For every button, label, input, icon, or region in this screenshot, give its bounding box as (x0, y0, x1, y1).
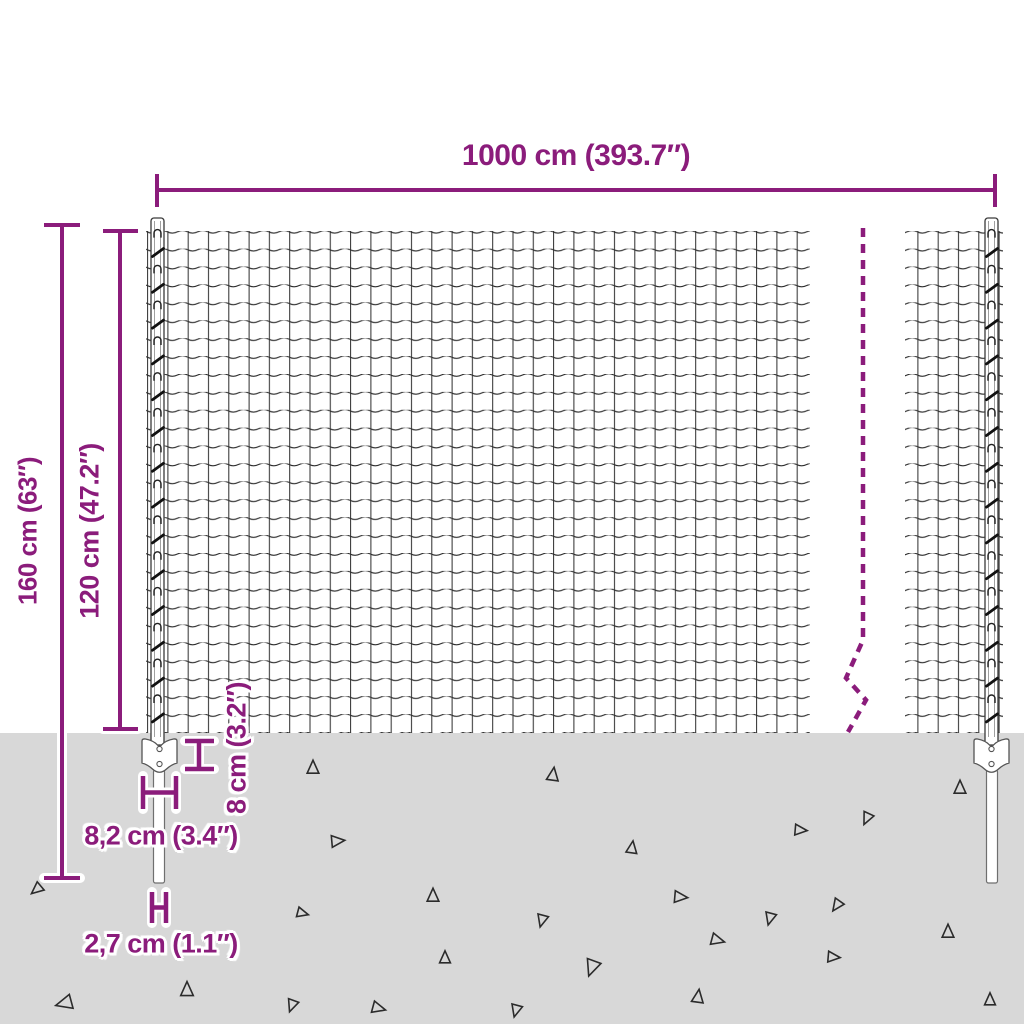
product-dimension-diagram: 1000 cm (393.7″) 160 cm (63″) 120 cm (47… (0, 0, 1024, 1024)
anchor-plate-hole (989, 746, 994, 751)
fence-post-right (985, 218, 998, 745)
label-total-height: 160 cm (63″) (13, 457, 44, 605)
anchor-plate-hole (157, 761, 162, 766)
label-anchor-plate-depth: 8 cm (3.2″) (222, 682, 253, 814)
dim-line-total-width (157, 174, 995, 207)
label-fence-height: 120 cm (47.2″) (75, 443, 106, 619)
dim-line-fence-height (103, 231, 138, 729)
anchor-plate-hole (157, 746, 162, 751)
label-total-width: 1000 cm (393.7″) (462, 139, 690, 173)
label-spike-width: 2,7 cm (1.1″) (84, 929, 238, 960)
panel-break-dashed-line (846, 228, 866, 732)
fence-post-left (151, 218, 164, 745)
mesh-panel-left (146, 231, 810, 733)
ground-spike-right (987, 770, 998, 883)
label-anchor-plate-width: 8,2 cm (3.4″) (84, 821, 238, 852)
anchor-plate-hole (989, 761, 994, 766)
